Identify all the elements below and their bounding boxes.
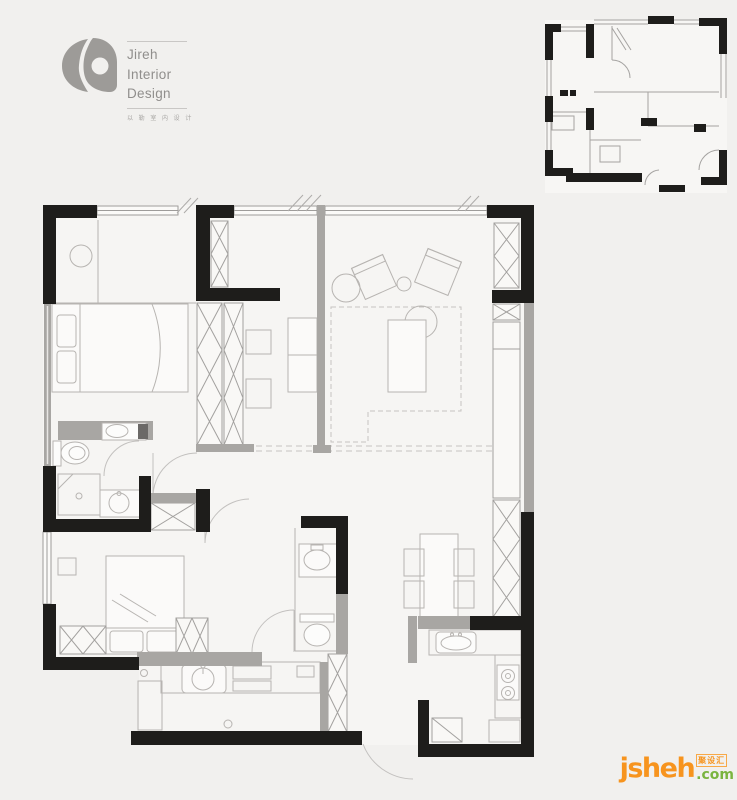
plan-drawing: [0, 0, 737, 800]
watermark-badge: 聚设汇: [696, 754, 727, 767]
entry-storage-column: [493, 304, 520, 617]
kitchen-base-box: [432, 718, 462, 742]
floor-plan-image: Jireh Interior Design 以 勒 室 内 设 计 jsheh …: [0, 0, 737, 800]
logo-name-line1: Jireh: [127, 45, 197, 65]
master-bath-sink-top: [102, 423, 148, 440]
logo-rule-bottom: [127, 108, 187, 109]
logo-text-block: Jireh Interior Design 以 勒 室 内 设 计: [127, 41, 197, 122]
wardrobe-master: [197, 303, 222, 445]
watermark-site-name: jsheh: [620, 756, 695, 782]
site-watermark: jsheh 聚设汇 .com: [620, 754, 734, 782]
cabinet-study-top: [211, 221, 228, 287]
logo-name-line2: Interior: [127, 65, 197, 85]
wardrobe-bedroom2: [60, 626, 106, 654]
shoe-cabinet: [151, 503, 195, 530]
watermark-tld: .com: [696, 768, 734, 782]
closet-bedroom2: [176, 618, 208, 654]
tv-wall-storage: [494, 223, 519, 288]
bedroom2-furniture: [106, 556, 184, 654]
logo-name-line3: Design: [127, 84, 197, 104]
main-floor-plan: [43, 195, 534, 779]
floor-fill: [43, 205, 534, 757]
wardrobe-study: [224, 303, 243, 445]
jireh-logo-icon: [62, 38, 117, 92]
thumbnail-floor-plan: [545, 16, 727, 193]
logo-tagline: 以 勒 室 内 设 计: [127, 113, 197, 122]
laundry-column: [328, 654, 347, 732]
